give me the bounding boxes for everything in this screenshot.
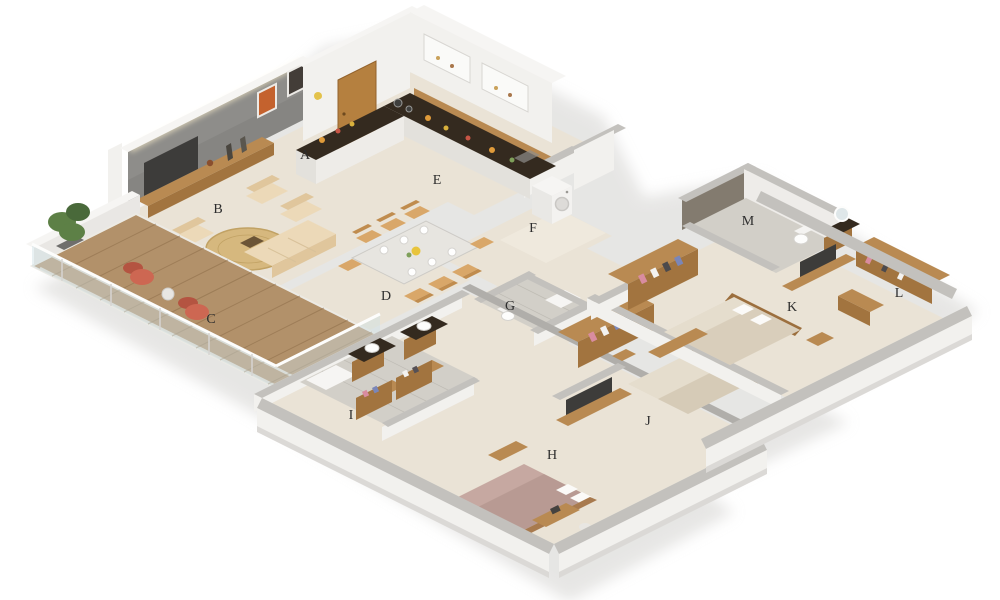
washer-door <box>556 198 569 211</box>
washbasin <box>417 322 431 331</box>
decor-vase <box>207 160 213 166</box>
room-label-K-bedroom-right: K <box>787 300 797 315</box>
room-label-I-master-bathroom: I <box>349 408 354 423</box>
place-plate <box>380 246 388 254</box>
food-plate <box>510 158 515 163</box>
cooktop-pot <box>406 106 412 112</box>
place-plate <box>448 248 456 256</box>
room-label-C-balcony-deck: C <box>206 312 215 327</box>
room-label-G-common-bathroom: G <box>505 299 515 314</box>
toilet <box>794 234 808 244</box>
food-plate <box>489 147 495 153</box>
food-plate <box>319 137 325 143</box>
cabinet-dish <box>494 86 498 90</box>
food-plate <box>350 122 355 127</box>
room-label-B-living-room: B <box>213 202 222 217</box>
room-label-F-utility: F <box>529 221 537 236</box>
place-plate <box>428 258 436 266</box>
room-label-J-bedroom-middle: J <box>645 414 651 429</box>
food-plate <box>466 136 471 141</box>
lounge-chair <box>130 269 154 285</box>
washbasin <box>365 344 379 353</box>
place-plate <box>400 236 408 244</box>
room-label-L-dressing-area: L <box>895 286 904 301</box>
washer-dial <box>566 191 569 194</box>
cabinet-dish <box>436 56 440 60</box>
utility-room <box>532 176 572 224</box>
plant-foliage <box>66 203 90 221</box>
room-label-E-kitchen: E <box>433 173 442 188</box>
balcony-table <box>162 288 174 300</box>
floorplan-canvas: ABCDEFGHIJKLM <box>0 0 1000 600</box>
centerpiece-leaf <box>407 253 412 258</box>
centerpiece <box>412 247 421 256</box>
plant-foliage <box>59 223 85 241</box>
food-plate <box>444 126 449 131</box>
cabinet-dish <box>508 93 512 97</box>
round-mirror <box>835 207 849 221</box>
food-plate <box>336 129 341 134</box>
room-label-D-dining-area: D <box>381 289 391 304</box>
floorplan-render: ABCDEFGHIJKLM <box>0 0 1000 600</box>
place-plate <box>420 226 428 234</box>
room-label-M-bathroom-right: M <box>742 214 755 229</box>
room-label-H-bedroom-lower: H <box>547 448 557 463</box>
food-plate <box>425 115 431 121</box>
place-plate <box>408 268 416 276</box>
room-label-A-kitchen-entry: A <box>300 148 311 163</box>
cooktop-pot <box>394 99 402 107</box>
door-handle <box>342 112 345 115</box>
cabinet-dish <box>450 64 454 68</box>
